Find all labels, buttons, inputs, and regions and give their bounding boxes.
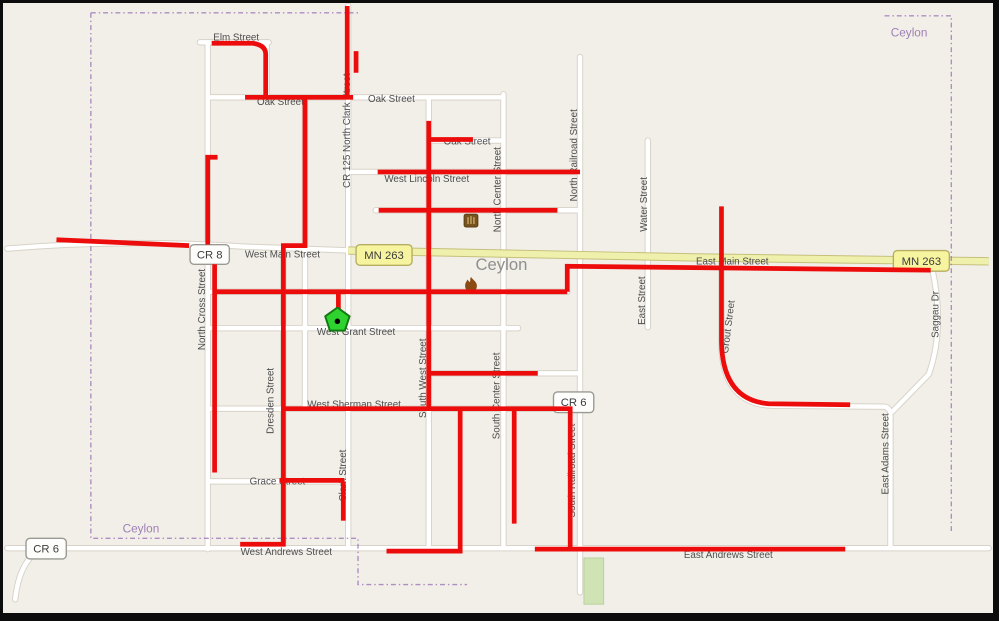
city-name-label: Ceylon [475, 255, 527, 274]
route-shield-label: MN 263 [364, 250, 404, 262]
street-label: West Andrews Street [241, 547, 333, 558]
street-label-vertical: North Railroad Street [569, 109, 580, 201]
street-label-vertical: Dresden Street [266, 368, 277, 434]
route-shield-label: CR 6 [33, 544, 59, 556]
boundary-name-label: Ceylon [891, 26, 928, 39]
street-label-vertical: South Center Street [491, 352, 502, 439]
street-label-vertical: East Street [637, 276, 648, 325]
boundary-name-label: Ceylon [123, 522, 160, 535]
street-label: Oak Street [368, 94, 415, 105]
street-label-vertical: North Cross Street [197, 269, 208, 351]
pentagon-marker-dot [335, 319, 341, 325]
street-label: East Andrews Street [684, 550, 773, 561]
street-label-vertical: Saggau Dr [931, 290, 942, 338]
street-label-vertical: East Adams Street [880, 413, 891, 495]
street-label-vertical: Water Street [639, 177, 650, 232]
route-shield-label: MN 263 [902, 256, 942, 268]
map-canvas[interactable]: CR 8MN 263CR 6CR 6MN 263Elm StreetOak St… [3, 3, 993, 613]
park-area [584, 558, 604, 604]
street-label-vertical: North Center Street [492, 147, 503, 232]
route-shield-label: CR 8 [197, 249, 223, 261]
map-viewport[interactable]: CR 8MN 263CR 6CR 6MN 263Elm StreetOak St… [0, 0, 999, 621]
